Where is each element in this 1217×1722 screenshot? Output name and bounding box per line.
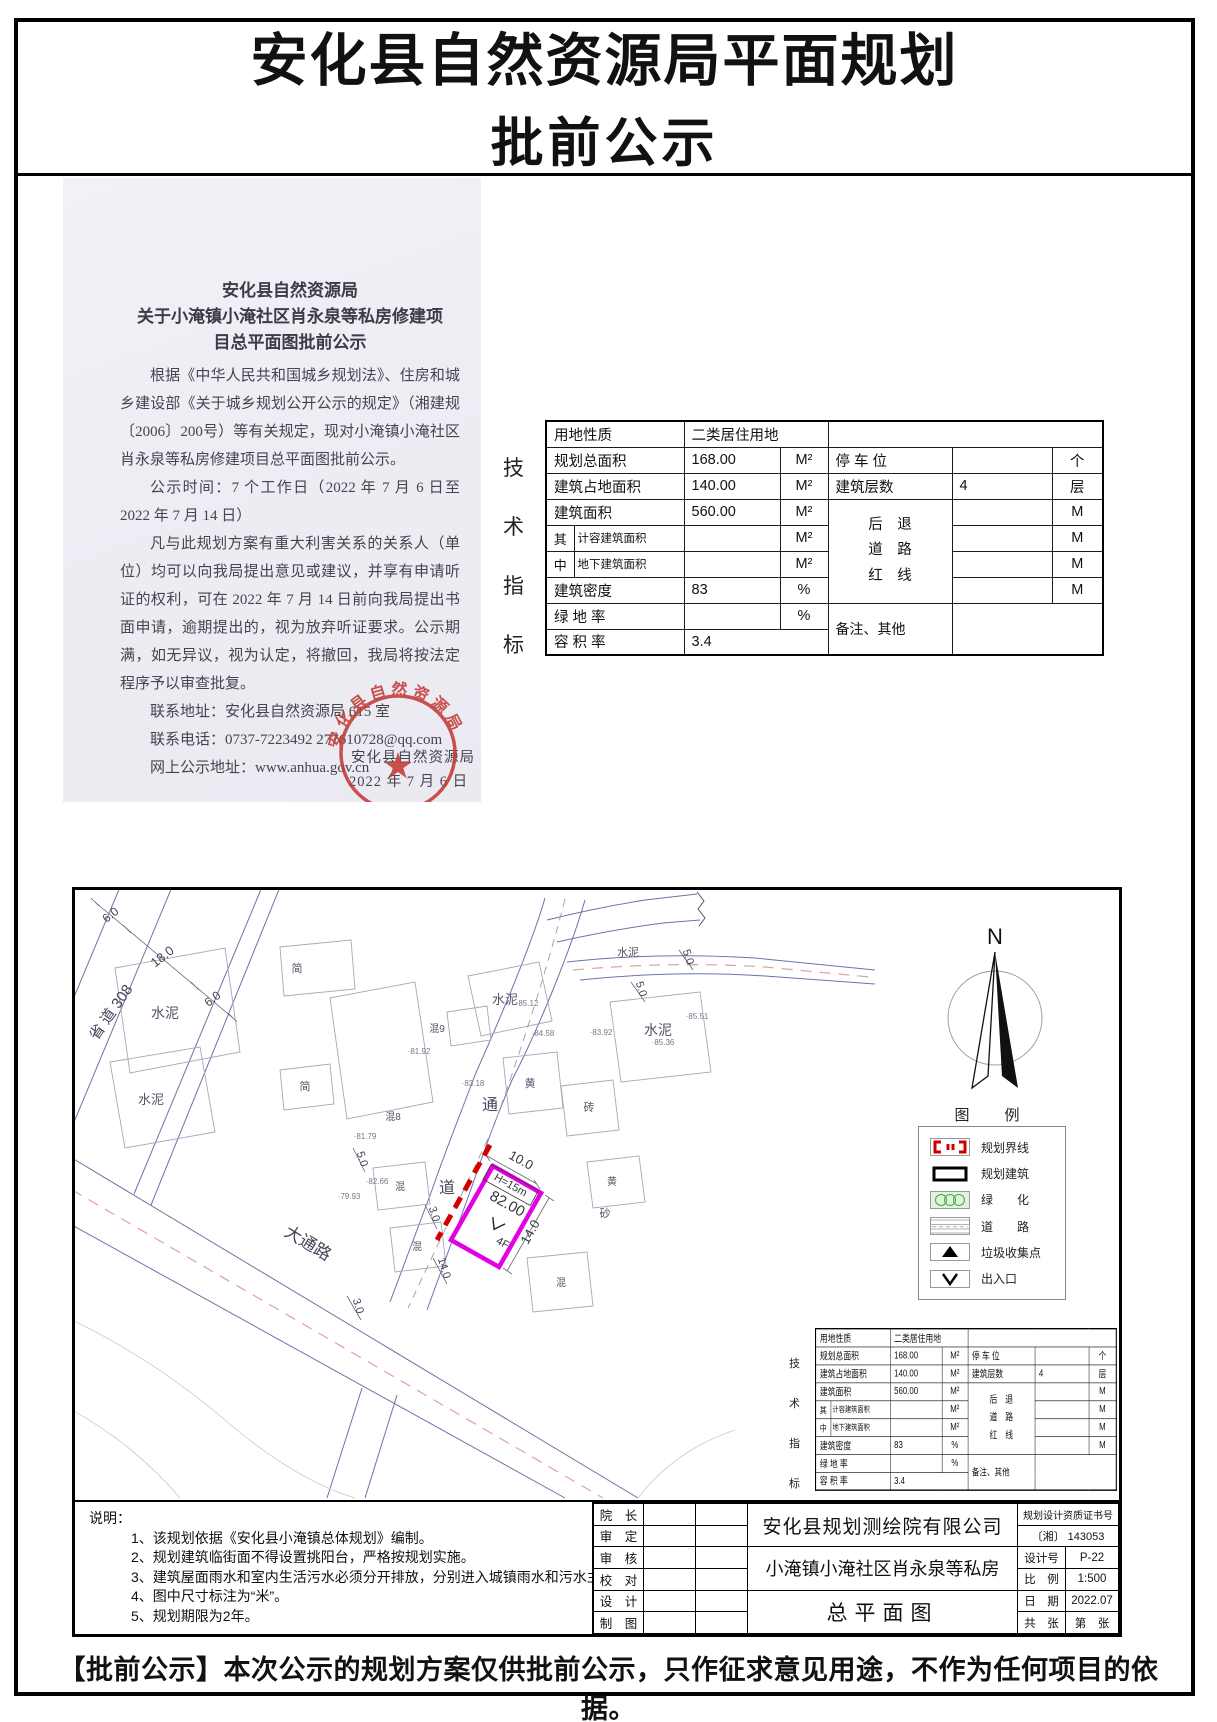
map-label: 简	[300, 1079, 311, 1093]
far-label: 容 积 率	[816, 1472, 891, 1490]
road-break-icon	[697, 892, 705, 926]
setback-value	[1035, 1418, 1089, 1436]
tech-table: 用地性质 二类居住用地 规划总面积 168.00 M² 停 车 位 个 建筑占地…	[545, 420, 1104, 656]
legend-item-trash: 垃圾收集点	[919, 1243, 1065, 1261]
floors-label: 建筑层数	[828, 473, 952, 499]
page-title: 安化县自然资源局平面规划 批前公示	[14, 18, 1195, 176]
table-row: 用地性质 二类居住用地	[816, 1329, 1117, 1347]
total-area-label: 规划总面积	[816, 1347, 891, 1365]
setback-line: 红 线	[968, 1427, 1034, 1445]
side-label-char: 术	[789, 1395, 800, 1411]
underground-gfa-value	[890, 1418, 942, 1436]
footprint-value: 140.00	[684, 473, 780, 499]
unit: 层	[1089, 1365, 1117, 1383]
map-label: 水泥	[151, 1005, 179, 1021]
official-seal: 安化县自然资源局 ★	[311, 666, 481, 802]
unit: M	[1052, 499, 1103, 525]
design-no-value: P-22	[1066, 1547, 1119, 1569]
unit: M²	[942, 1365, 968, 1383]
map-label: 水泥	[138, 1092, 164, 1107]
map-label: 道	[439, 1179, 455, 1197]
side-label-char: 指	[789, 1435, 800, 1451]
tech-indicator-side-label: 技 术 指 标	[503, 452, 524, 688]
unit: M²	[942, 1383, 968, 1401]
page-title-line1: 安化县自然资源局平面规划	[251, 15, 959, 97]
table-row: 建筑面积 560.00 M² 后 退 道 路 红 线 M	[546, 499, 1103, 525]
building-outlines	[110, 940, 711, 1312]
density-value: 83	[684, 577, 780, 603]
note-item: 2、规划建筑临街面不得设置挑阳台，严格按规划实施。	[89, 1548, 585, 1568]
legend-title: 图 例	[918, 1104, 1066, 1125]
setback-label: 后 退 道 路 红 线	[968, 1383, 1035, 1455]
setback-line: 后 退	[968, 1392, 1034, 1410]
unit: M²	[942, 1418, 968, 1436]
sheets-number: 第 张	[1066, 1612, 1119, 1634]
remark-value	[1035, 1454, 1117, 1490]
table-row: 建筑密度 83 % M	[546, 577, 1103, 603]
unit: M	[1052, 551, 1103, 577]
company-name: 安化县规划测绘院有限公司	[748, 1504, 1018, 1547]
parking-value	[1035, 1347, 1089, 1365]
map-label: ·84.58	[532, 1029, 555, 1038]
map-label: 混	[556, 1277, 566, 1289]
land-use-label: 用地性质	[546, 421, 684, 447]
far-value: 3.4	[684, 629, 828, 655]
unit: M	[1089, 1418, 1117, 1436]
role-director: 院 长	[594, 1504, 644, 1526]
unit: M²	[780, 447, 828, 473]
map-label: ·83.18	[462, 1079, 485, 1088]
table-row: 其 计容建筑面积 M² M	[816, 1400, 1117, 1418]
setback-value	[952, 577, 1052, 603]
date-value: 2022.07	[1066, 1591, 1119, 1613]
map-label: 水泥	[492, 992, 518, 1007]
density-label: 建筑密度	[546, 577, 684, 603]
map-label: 3.0	[426, 1205, 442, 1223]
tech-indicator-table-small: 用地性质 二类居住用地 规划总面积 168.00 M² 停 车 位 个 建筑占地…	[815, 1328, 1117, 1491]
table-row: 建筑占地面积 140.00 M² 建筑层数 4 层	[546, 473, 1103, 499]
table-row: 用地性质 二类居住用地	[546, 421, 1103, 447]
cert-number: 〔湘〕 143053	[1018, 1526, 1119, 1548]
gfa-value: 560.00	[684, 499, 780, 525]
note-item: 3、建筑屋面雨水和室内生活污水必须分开排放，分别进入城镇雨水和污水主干管。	[89, 1568, 585, 1588]
notice-heading-line2: 关于小淹镇小淹社区肖永泉等私房修建项	[120, 304, 460, 330]
dimension-lines	[91, 898, 693, 1320]
unit: M	[1089, 1383, 1117, 1401]
note-item: 5、规划期限为2年。	[89, 1607, 585, 1627]
date-cell	[696, 1591, 748, 1613]
legend-item-label: 规划建筑	[981, 1165, 1029, 1182]
table-row: 中 地下建筑面积 M² M	[816, 1418, 1117, 1436]
legend-item-label: 出入口	[981, 1270, 1017, 1287]
role-drafter: 制 图	[594, 1612, 644, 1634]
countable-gfa-value	[890, 1400, 942, 1418]
footer-disclaimer: 【批前公示】本次公示的规划方案仅供批前公示，只作征求意见用途，不作为任何项目的依…	[40, 1648, 1177, 1722]
empty-cell	[828, 421, 1103, 447]
map-label: 砂	[600, 1207, 611, 1220]
prefix: 其	[816, 1400, 831, 1418]
legend-item-label: 道 路	[981, 1218, 1029, 1235]
map-label: ·85.12	[516, 999, 539, 1008]
title-block: 院 长 审 定 审 核 校 对 设 计 制 图 安化县规划测绘院有限公司 小淹镇…	[592, 1502, 1119, 1634]
countable-gfa-value	[684, 525, 780, 551]
remark-value	[952, 603, 1103, 655]
map-label: 大通路	[281, 1222, 335, 1265]
remark-label: 备注、其他	[828, 603, 952, 655]
gfa-label: 建筑面积	[816, 1383, 891, 1401]
total-area-value: 168.00	[684, 447, 780, 473]
underground-gfa-value	[684, 551, 780, 577]
map-label: 14.0	[517, 1217, 542, 1246]
setback-label: 后 退 道 路 红 线	[828, 499, 952, 603]
countable-gfa-label: 计容建筑面积	[574, 525, 684, 551]
table-row: 中 地下建筑面积 M² M	[546, 551, 1103, 577]
side-label-char: 术	[503, 511, 524, 541]
map-label: 5.0	[354, 1150, 370, 1168]
date-cell	[696, 1504, 748, 1526]
map-label: 3.0	[350, 1297, 366, 1315]
map-label: 18.0	[148, 943, 177, 970]
cert-label: 规划设计资质证书号	[1018, 1504, 1119, 1526]
note-item: 1、该规划依据《安化县小淹镇总体规划》编制。	[89, 1529, 585, 1549]
far-value: 3.4	[890, 1472, 968, 1490]
floors-value: 4	[1035, 1365, 1089, 1383]
role-approver: 审 定	[594, 1526, 644, 1548]
setback-line: 后 退	[829, 513, 952, 538]
signature-cell	[644, 1591, 696, 1613]
notice-paragraph-2: 公示时间：7 个工作日（2022 年 7 月 6 日至 2022 年 7 月 1…	[120, 474, 460, 530]
legend-item-entrance: 出入口	[919, 1270, 1065, 1288]
map-label: 黄	[525, 1076, 536, 1090]
design-no-label: 设计号	[1018, 1547, 1066, 1569]
side-label-char: 技	[789, 1355, 800, 1371]
land-use-label: 用地性质	[816, 1329, 891, 1347]
unit: %	[942, 1454, 968, 1472]
unit: M²	[780, 473, 828, 499]
land-use-value: 二类居住用地	[684, 421, 828, 447]
prefix: 中	[546, 551, 574, 577]
drawing-title: 总平面图	[748, 1591, 1018, 1634]
entrance-marker-icon	[488, 1217, 505, 1233]
unit: 个	[1089, 1347, 1117, 1365]
map-label: ·85.36	[652, 1038, 675, 1047]
notes-heading: 说明：	[89, 1509, 585, 1529]
publicity-page: 安化县自然资源局平面规划 批前公示 安化县自然资源局 关于小淹镇小淹社区肖永泉等…	[0, 0, 1217, 1722]
sheets-total: 共 张	[1018, 1612, 1066, 1634]
setback-value	[952, 551, 1052, 577]
legend-item-label: 绿 化	[981, 1191, 1029, 1208]
date-cell	[696, 1612, 748, 1634]
table-row: 其 计容建筑面积 M² M	[546, 525, 1103, 551]
table-row: 建筑占地面积 140.00 M² 建筑层数 4 层	[816, 1365, 1117, 1383]
total-area-value: 168.00	[890, 1347, 942, 1365]
map-label: 通	[482, 1096, 498, 1114]
notice-paragraph-1: 根据《中华人民共和国城乡规划法》、住房和城乡建设部《关于城乡规划公开公示的规定》…	[120, 362, 460, 474]
signature-cell	[644, 1504, 696, 1526]
unit: 层	[1052, 473, 1103, 499]
countable-gfa-label: 计容建筑面积	[831, 1400, 890, 1418]
side-label-char: 指	[503, 570, 524, 600]
signature-cell	[644, 1612, 696, 1634]
empty-cell	[968, 1329, 1117, 1347]
map-label: ·81.79	[354, 1132, 377, 1141]
date-cell	[696, 1569, 748, 1591]
green-icon	[930, 1191, 970, 1209]
role-reviewer: 审 核	[594, 1547, 644, 1569]
signature-cell	[644, 1569, 696, 1591]
trash-icon	[930, 1243, 970, 1261]
notice-heading-line3: 目总平面图批前公示	[120, 330, 460, 356]
unit: %	[942, 1436, 968, 1454]
seal-arc-text: 安化县自然资源局	[325, 680, 467, 750]
map-label: 省 道 308	[86, 982, 136, 1044]
legend: 规划界线 规划建筑 绿 化 道 路	[918, 1126, 1066, 1300]
map-label: 混	[395, 1181, 405, 1193]
remark-label: 备注、其他	[968, 1454, 1035, 1490]
prefix: 其	[546, 525, 574, 551]
table-row: 建筑密度 83 % M	[816, 1436, 1117, 1454]
unit: %	[780, 603, 828, 629]
map-label: 6.0	[100, 904, 122, 926]
density-label: 建筑密度	[816, 1436, 891, 1454]
map-label: ·81.92	[408, 1047, 431, 1056]
green-rate-value	[890, 1454, 942, 1472]
unit: M²	[780, 551, 828, 577]
entrance-icon	[930, 1270, 970, 1288]
legend-item-green: 绿 化	[919, 1191, 1065, 1209]
setback-line: 道 路	[968, 1410, 1034, 1428]
map-label: 混	[412, 1241, 422, 1253]
gfa-value: 560.00	[890, 1383, 942, 1401]
side-label-char: 技	[503, 452, 524, 482]
page-title-line2: 批前公示	[491, 101, 719, 177]
scale-value: 1:500	[1066, 1569, 1119, 1591]
north-arrow: N	[948, 924, 1042, 1088]
map-label: 混9	[429, 1023, 445, 1035]
date-cell	[696, 1547, 748, 1569]
legend-item-label: 规划界线	[981, 1139, 1029, 1156]
legend-item-label: 垃圾收集点	[981, 1244, 1041, 1261]
unit: M	[1089, 1400, 1117, 1418]
setback-value	[952, 499, 1052, 525]
role-designer: 设 计	[594, 1591, 644, 1613]
north-label: N	[987, 924, 1003, 949]
far-label: 容 积 率	[546, 629, 684, 655]
map-label: 14.0	[435, 1256, 453, 1280]
unit: M²	[942, 1347, 968, 1365]
map-label: 5.0	[680, 948, 696, 966]
setback-line: 道 路	[829, 538, 952, 563]
tech-indicator-table-large: 用地性质 二类居住用地 规划总面积 168.00 M² 停 车 位 个 建筑占地…	[545, 420, 1104, 656]
map-label: 6.0	[202, 988, 224, 1010]
map-label: 混8	[385, 1111, 401, 1123]
parking-label: 停 车 位	[828, 447, 952, 473]
setback-value	[1035, 1436, 1089, 1454]
table-row: 规划总面积 168.00 M² 停 车 位 个	[816, 1347, 1117, 1365]
role-checker: 校 对	[594, 1569, 644, 1591]
svg-text:安化县自然资源局: 安化县自然资源局	[325, 680, 467, 750]
notice-heading-line1: 安化县自然资源局	[120, 278, 460, 304]
site-plan-panel: N 省 道 3086.018.06.0通道大通路水泥简混9水泥水泥黄砖混8水泥简…	[72, 887, 1122, 1637]
scale-label: 比 例	[1018, 1569, 1066, 1591]
boundary-icon	[930, 1138, 970, 1156]
floors-value: 4	[952, 473, 1052, 499]
table-row: 绿 地 率 % 备注、其他	[816, 1454, 1117, 1472]
map-labels: 省 道 3086.018.06.0通道大通路水泥简混9水泥水泥黄砖混8水泥简混混…	[86, 904, 709, 1315]
footprint-value: 140.00	[890, 1365, 942, 1383]
unit: M	[1089, 1436, 1117, 1454]
project-name: 小淹镇小淹社区肖永泉等私房	[748, 1547, 1018, 1590]
road-icon	[930, 1217, 970, 1235]
map-label: 砖	[584, 1100, 595, 1114]
footprint-label: 建筑占地面积	[816, 1365, 891, 1383]
tech-table-small: 用地性质 二类居住用地 规划总面积 168.00 M² 停 车 位 个 建筑占地…	[815, 1328, 1117, 1491]
unit: M²	[942, 1400, 968, 1418]
legend-item-boundary: 规划界线	[919, 1138, 1065, 1156]
map-label: 水泥	[644, 1022, 672, 1038]
total-area-label: 规划总面积	[546, 447, 684, 473]
building-icon	[930, 1165, 970, 1183]
setback-value	[1035, 1383, 1089, 1401]
floors-label: 建筑层数	[968, 1365, 1035, 1383]
map-label: 黄	[607, 1175, 617, 1188]
date-cell	[696, 1526, 748, 1548]
table-row: 绿 地 率 % 备注、其他	[546, 603, 1103, 629]
green-rate-value	[684, 603, 780, 629]
map-label: ·85.51	[686, 1012, 709, 1021]
parking-value	[952, 447, 1052, 473]
green-rate-label: 绿 地 率	[546, 603, 684, 629]
unit: M²	[780, 525, 828, 551]
underground-gfa-label: 地下建筑面积	[831, 1418, 890, 1436]
prefix: 中	[816, 1418, 831, 1436]
note-item: 4、图中尺寸标注为“米”。	[89, 1587, 585, 1607]
land-use-value: 二类居住用地	[890, 1329, 968, 1347]
seal-star-icon: ★	[382, 746, 414, 786]
side-label-char: 标	[503, 629, 524, 659]
unit: M²	[780, 499, 828, 525]
unit: M	[1052, 577, 1103, 603]
underground-gfa-label: 地下建筑面积	[574, 551, 684, 577]
table-row: 建筑面积 560.00 M² 后 退 道 路 红 线 M	[816, 1383, 1117, 1401]
legend-item-road: 道 路	[919, 1217, 1065, 1235]
unit: 个	[1052, 447, 1103, 473]
footprint-label: 建筑占地面积	[546, 473, 684, 499]
map-label: 水泥	[617, 946, 639, 959]
parking-label: 停 车 位	[968, 1347, 1035, 1365]
setback-value	[1035, 1400, 1089, 1418]
green-rate-label: 绿 地 率	[816, 1454, 891, 1472]
map-label: 简	[292, 961, 303, 975]
setback-line: 红 线	[829, 564, 952, 589]
side-label-char: 标	[789, 1475, 800, 1491]
setback-value	[952, 525, 1052, 551]
table-row: 规划总面积 168.00 M² 停 车 位 个	[546, 447, 1103, 473]
date-label: 日 期	[1018, 1591, 1066, 1613]
map-label: ·83.92	[590, 1028, 613, 1037]
density-value: 83	[890, 1436, 942, 1454]
plan-notes: 说明： 1、该规划依据《安化县小淹镇总体规划》编制。 2、规划建筑临街面不得设置…	[89, 1509, 585, 1626]
legend-item-building: 规划建筑	[919, 1165, 1065, 1183]
signature-cell	[644, 1526, 696, 1548]
notice-document: 安化县自然资源局 关于小淹镇小淹社区肖永泉等私房修建项 目总平面图批前公示 根据…	[63, 178, 481, 802]
tech-indicator-side-label-small: 技 术 指 标	[789, 1355, 800, 1515]
gfa-label: 建筑面积	[546, 499, 684, 525]
map-label: ·82.66	[366, 1177, 389, 1186]
unit: M	[1052, 525, 1103, 551]
signature-cell	[644, 1547, 696, 1569]
map-label: ·79.93	[338, 1192, 361, 1201]
map-label: 5.0	[633, 980, 649, 998]
unit: %	[780, 577, 828, 603]
